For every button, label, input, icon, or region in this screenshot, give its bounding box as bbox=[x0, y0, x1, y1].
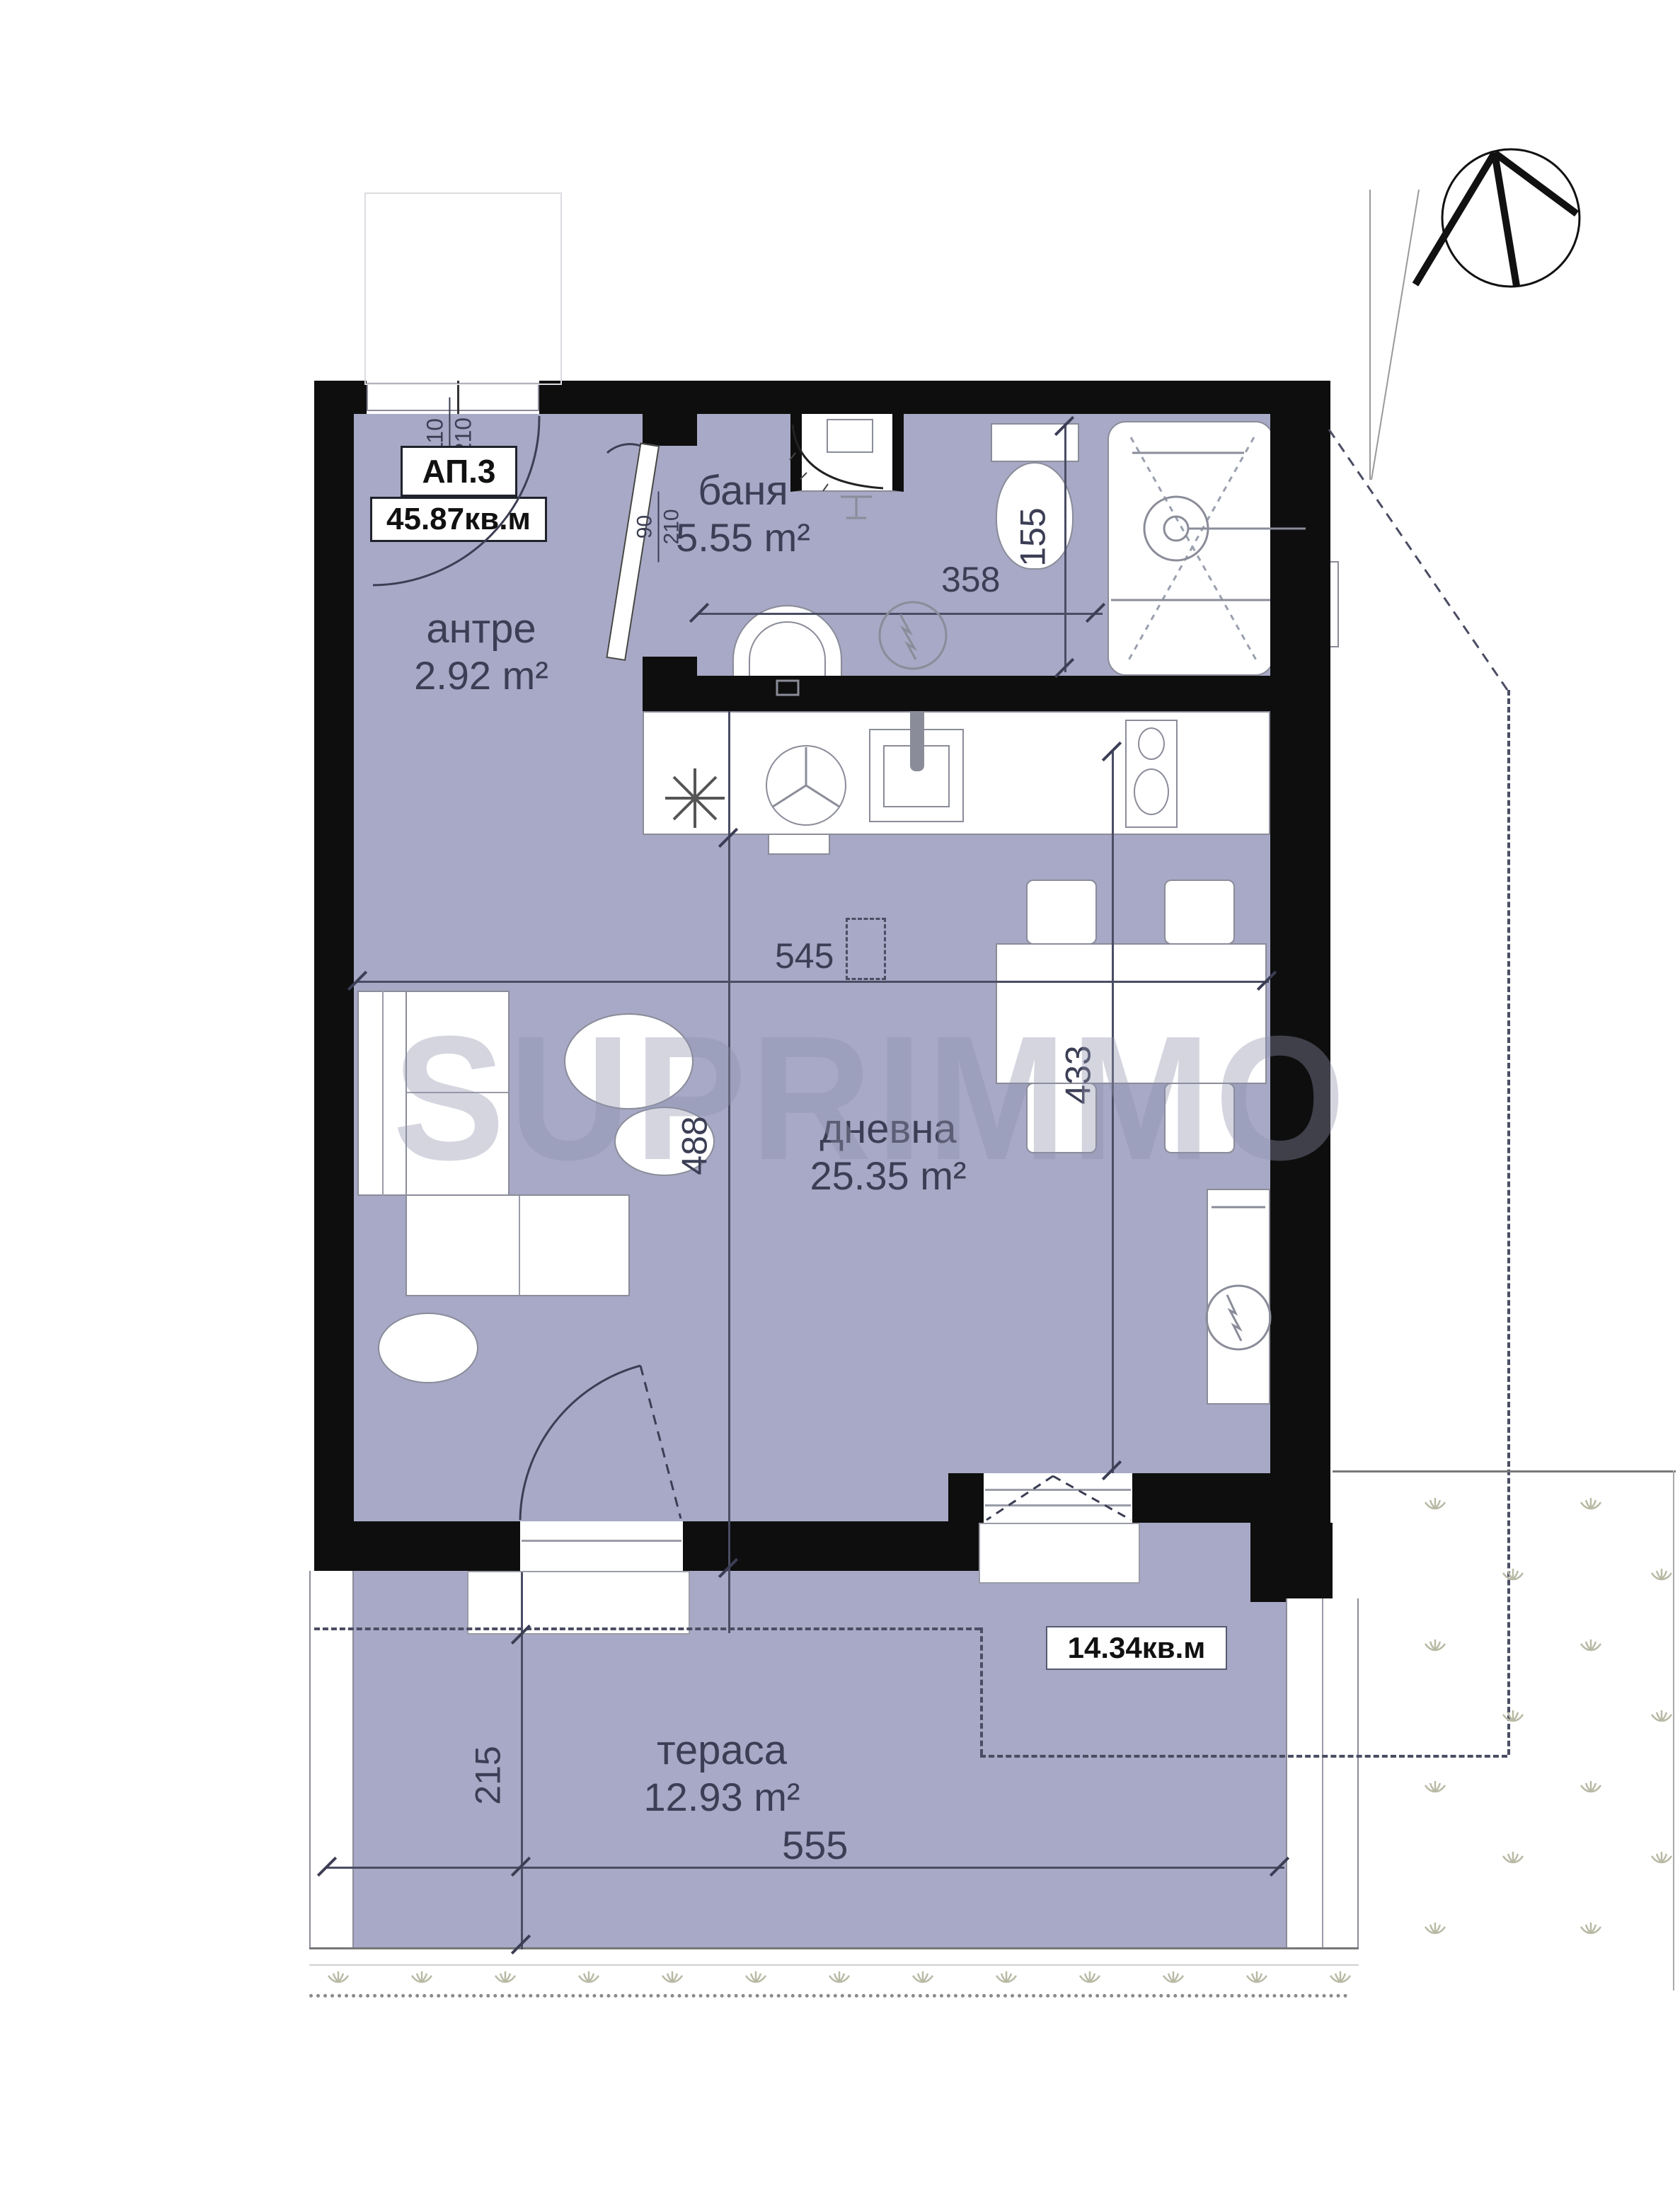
bath-sink-tap bbox=[777, 681, 798, 695]
entrance-door-arc bbox=[373, 416, 539, 585]
plant-icon bbox=[1207, 1286, 1270, 1349]
grass-icon bbox=[743, 1970, 769, 1984]
bath-door-arc bbox=[607, 444, 640, 453]
bath-drain-squiggle bbox=[900, 614, 916, 659]
balcony-door-arc bbox=[520, 1366, 640, 1520]
fan-spokes-icon bbox=[773, 747, 839, 807]
plant-squiggle bbox=[1227, 1295, 1241, 1341]
window-dash-left bbox=[986, 1476, 1053, 1520]
shower-slope-2 bbox=[1127, 437, 1254, 664]
fridge-asterisk-icon bbox=[665, 768, 725, 828]
grass-icon bbox=[1500, 1850, 1526, 1865]
grass-icon bbox=[910, 1970, 936, 1984]
grass-icon bbox=[1422, 1921, 1448, 1935]
grass-icon bbox=[1077, 1970, 1103, 1984]
grass-icon bbox=[1161, 1970, 1186, 1984]
grass-icon bbox=[1422, 1638, 1448, 1652]
grass-icon bbox=[1578, 1638, 1604, 1652]
grass-icon bbox=[1578, 1780, 1604, 1794]
grass-icon bbox=[1649, 1567, 1674, 1581]
construction-line-diagonal bbox=[1371, 190, 1419, 480]
grass-icon bbox=[1578, 1497, 1604, 1511]
grass-icon bbox=[1244, 1970, 1270, 1984]
site-dashed-diagonal bbox=[1329, 430, 1507, 690]
grass-icon bbox=[326, 1970, 351, 1984]
grass-icon bbox=[1649, 1709, 1674, 1723]
grass-icon bbox=[1328, 1970, 1353, 1984]
vector-overlay bbox=[0, 0, 1680, 2190]
grass-icon bbox=[409, 1970, 435, 1984]
grass-icon bbox=[1578, 1921, 1604, 1935]
window-dash-right bbox=[1053, 1476, 1131, 1520]
washer-hatch bbox=[793, 425, 883, 488]
grass-icon bbox=[1500, 1567, 1526, 1581]
grass-icon bbox=[827, 1970, 852, 1984]
grass-icon bbox=[1422, 1497, 1448, 1511]
grass-icon bbox=[1649, 1850, 1674, 1865]
bath-drain-icon bbox=[880, 602, 946, 669]
grass-icon bbox=[994, 1970, 1019, 1984]
bath-faucet-icon bbox=[841, 497, 872, 518]
shower-drain-inner bbox=[1164, 517, 1188, 541]
shower-slope-1 bbox=[1131, 437, 1258, 664]
grass-icon bbox=[660, 1970, 685, 1984]
north-arrow-icon bbox=[1415, 149, 1580, 287]
floor-plan: 358 155 545 488 433 215 555 110 210 90 2… bbox=[0, 0, 1680, 2190]
grass-icon bbox=[493, 1970, 518, 1984]
balcony-door-leaf-dashed bbox=[640, 1366, 681, 1518]
grass-icon bbox=[1500, 1709, 1526, 1723]
grass-icon bbox=[576, 1970, 602, 1984]
grass-icon bbox=[1422, 1780, 1448, 1794]
